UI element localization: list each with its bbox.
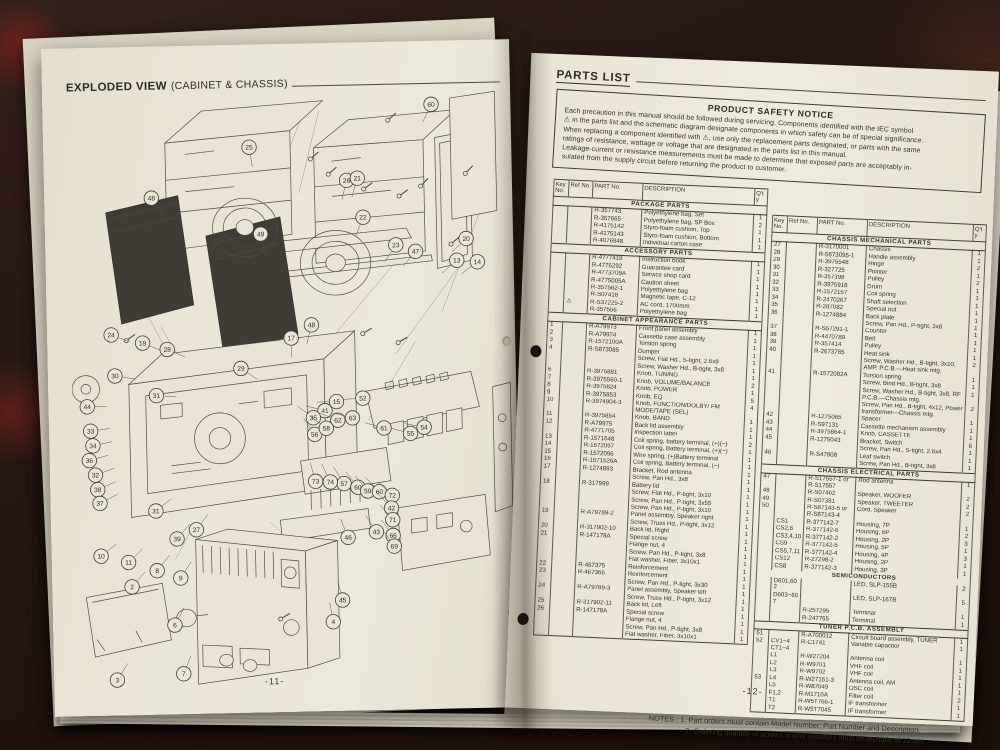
qty: 1	[740, 501, 753, 509]
qty: 1	[966, 376, 979, 384]
qty: 1	[955, 621, 968, 630]
qty: 1	[958, 563, 971, 571]
key-no	[762, 441, 777, 449]
part-no: R-3974904-3	[583, 397, 634, 414]
key-no: 14	[542, 440, 557, 448]
key-no: 15	[542, 447, 557, 455]
qty: 2	[961, 504, 974, 512]
key-no	[540, 492, 555, 500]
qty: 1	[739, 524, 752, 532]
qty: 1	[752, 237, 765, 245]
callout-number: 4	[331, 619, 335, 626]
qty: 1	[968, 340, 981, 348]
qty: 1	[953, 660, 966, 668]
callout-number: 49	[257, 231, 265, 238]
qty: 1	[736, 606, 749, 614]
qty: 1	[734, 636, 747, 645]
key-no: 18	[540, 477, 555, 485]
ref-no: T2	[765, 704, 795, 713]
qty: 1	[748, 330, 761, 339]
callout-number: 31	[152, 508, 160, 515]
key-no: 17	[541, 462, 556, 470]
key-no	[758, 524, 773, 532]
qty: 1	[964, 420, 977, 428]
qty: 2	[959, 533, 972, 541]
key-no: 38	[767, 331, 782, 339]
key-no	[758, 531, 773, 539]
key-no: 21	[538, 529, 553, 537]
key-no	[538, 537, 553, 545]
part-no	[811, 355, 862, 372]
qty: 1	[952, 682, 965, 690]
callout-number: 20	[462, 236, 470, 243]
ref-no	[548, 627, 572, 636]
key-no: 28	[771, 249, 786, 257]
qty: 1	[742, 464, 755, 472]
callout-number: 6	[173, 622, 177, 629]
part-no	[572, 628, 622, 638]
key-no	[534, 611, 549, 619]
key-no: 25	[535, 597, 550, 605]
qty: 1	[961, 481, 975, 496]
key-no: 48	[760, 487, 775, 495]
qty: 1	[972, 258, 985, 266]
qty: 1	[735, 621, 748, 629]
callout-number: 52	[359, 395, 367, 402]
key-no	[552, 228, 567, 236]
part-no	[800, 592, 851, 609]
ref-no: D603~607	[770, 591, 801, 607]
qty: 2	[960, 511, 974, 526]
key-no: 1	[547, 321, 562, 330]
callout-number: 17	[287, 335, 295, 342]
key-no	[752, 666, 767, 674]
key-no: 33	[769, 286, 784, 294]
key-no: 3	[547, 336, 562, 344]
callout-number: 15	[333, 399, 341, 406]
left-page: EXPLODED VIEW (CABINET & CHASSIS)	[41, 39, 523, 717]
qty: 2	[965, 406, 979, 421]
qty: 1	[969, 310, 982, 318]
qty: 1	[967, 355, 980, 363]
qty: 1	[741, 479, 754, 487]
callout-number: 62	[334, 417, 342, 424]
key-no: 23	[536, 567, 551, 575]
callout-number: 26	[343, 178, 351, 185]
key-no: 53	[752, 673, 767, 681]
key-no: 8	[545, 381, 560, 389]
qty: 1	[739, 531, 752, 539]
key-no	[537, 552, 552, 560]
qty: 1	[969, 325, 982, 333]
product-safety-notice: PRODUCT SAFETY NOTICE Each precaution in…	[552, 89, 986, 193]
qty: 1	[753, 214, 766, 223]
qty: 1	[746, 367, 759, 375]
callout-number: 23	[392, 242, 400, 249]
col-qty: Q'ty	[754, 188, 768, 206]
qty: 5	[745, 397, 758, 405]
key-no	[550, 267, 565, 275]
key-no: 20	[538, 522, 553, 530]
callout-number: 13	[453, 258, 461, 265]
callout-number: 27	[193, 527, 201, 534]
callout-number: 10	[97, 553, 105, 560]
callout-number: 54	[420, 424, 428, 431]
qty: 1	[971, 273, 984, 281]
qty: 6	[963, 442, 976, 450]
key-no: 36	[768, 308, 783, 316]
exploded-diagram: 6025482621224923472013144824192817293031…	[66, 89, 518, 696]
callout-number: 29	[237, 366, 245, 373]
qty: 1	[954, 646, 968, 661]
qty: 1	[966, 384, 979, 392]
qty: 1	[741, 486, 754, 494]
key-no: 51	[754, 629, 769, 638]
key-no: 40	[766, 346, 781, 354]
key-no	[549, 289, 564, 297]
key-no	[757, 561, 772, 569]
qty: 1	[736, 591, 749, 599]
key-no	[534, 619, 549, 627]
qty: 1	[749, 313, 762, 322]
qty: 1	[969, 317, 982, 325]
right-page-number: -12-	[742, 686, 762, 697]
callout-number: 46	[344, 535, 352, 542]
qty: 1	[744, 427, 757, 435]
qty: 2	[971, 265, 984, 273]
qty: 3	[958, 555, 971, 563]
key-no: 49	[760, 494, 775, 502]
key-no	[765, 375, 780, 383]
callout-number: 32	[92, 472, 100, 479]
qty: 1	[968, 347, 981, 355]
qty: 1	[970, 288, 983, 296]
right-page: PARTS LIST PRODUCT SAFETY NOTICE Each pr…	[505, 53, 999, 726]
key-no: 24	[536, 582, 551, 590]
qty: 1	[747, 345, 760, 353]
key-no	[549, 274, 564, 282]
key-no: 32	[770, 278, 785, 286]
key-no	[551, 235, 566, 244]
qty: 1	[952, 690, 965, 698]
callout-number: 42	[388, 505, 396, 512]
key-no: 11	[543, 410, 558, 418]
callout-number: 25	[245, 145, 253, 152]
key-no	[541, 470, 556, 478]
qty: 1	[751, 276, 764, 284]
key-no	[546, 358, 561, 366]
ref-no: CV1~4 CT1~4	[768, 637, 799, 653]
qty: 4	[744, 405, 758, 420]
qty: 1	[738, 561, 751, 569]
key-no: 42	[764, 411, 779, 419]
callout-number: 71	[389, 517, 397, 524]
key-no	[757, 554, 772, 562]
qty: 1	[748, 338, 761, 346]
qty: 1	[956, 614, 969, 622]
callout-number: 7	[182, 671, 186, 678]
qty: 5	[956, 599, 970, 614]
qty: 2	[746, 382, 759, 390]
parts-tables: Key No. Ref No. PART No. DESCRIPTION Q't…	[530, 178, 983, 721]
qty: 1	[740, 516, 753, 524]
callout-number: 21	[354, 175, 362, 182]
qty: 1	[735, 628, 748, 636]
key-no	[536, 574, 551, 582]
callout-number: 60	[427, 102, 435, 109]
qty: 1	[964, 435, 977, 443]
qty: 1	[746, 375, 759, 383]
key-no	[761, 456, 776, 465]
qty: 1	[750, 291, 763, 299]
qty: 1	[752, 244, 765, 253]
key-no	[758, 539, 773, 547]
ref-no: CS8	[772, 562, 802, 571]
key-no: 10	[544, 396, 560, 411]
key-no	[757, 546, 772, 554]
key-no	[548, 297, 563, 305]
key-no	[553, 205, 568, 214]
qty: 2	[967, 362, 981, 377]
key-no	[543, 425, 558, 433]
callout-number: 39	[173, 536, 181, 543]
ref-no	[779, 397, 810, 413]
key-no: 52	[753, 636, 769, 651]
callout-number: 45	[339, 597, 347, 604]
qty: 1	[960, 525, 973, 533]
key-no: 39	[767, 338, 782, 346]
qty: 1	[957, 570, 970, 578]
callout-number: 31	[153, 393, 161, 400]
callout-number: 59	[364, 488, 372, 495]
ref-no: D601,602	[771, 577, 802, 593]
qty: 1	[963, 450, 976, 458]
ref-no	[559, 396, 584, 411]
qty: 1	[963, 457, 976, 465]
key-no	[535, 589, 550, 597]
callout-number: 44	[83, 404, 91, 411]
qty: 1	[749, 306, 762, 314]
callout-number: 8	[155, 568, 159, 575]
key-no: 46	[762, 448, 777, 456]
part-no: R-W5T7045	[795, 705, 845, 715]
col-qty: Q'ty	[973, 224, 987, 242]
callout-number: 30	[111, 373, 119, 380]
part-no	[809, 384, 860, 401]
ref-no	[774, 503, 805, 519]
col-part: PART No.	[592, 181, 643, 201]
title-rule	[292, 74, 500, 86]
qty: 1	[744, 419, 757, 427]
key-no	[552, 213, 567, 221]
callout-number: 2	[130, 584, 134, 591]
key-no	[539, 500, 554, 508]
qty: 3	[959, 540, 972, 548]
qty: 1	[747, 360, 760, 368]
qty: 1	[747, 353, 760, 361]
callout-number: 69	[391, 543, 399, 550]
key-no: 7	[545, 373, 560, 381]
col-ref: Ref No.	[568, 179, 593, 198]
callout-number: 14	[474, 259, 482, 266]
key-no	[551, 251, 566, 260]
key-no	[754, 612, 769, 621]
key-no	[533, 626, 548, 635]
qty: 1	[739, 539, 752, 547]
key-no	[548, 304, 563, 313]
key-no	[765, 382, 781, 397]
key-no: 43	[763, 418, 778, 426]
callout-number: 11	[125, 560, 132, 567]
key-no	[759, 516, 774, 524]
qty: 1	[742, 471, 755, 479]
key-no: 16	[541, 455, 556, 463]
qty: 1	[745, 390, 758, 398]
key-no: 41	[765, 367, 780, 375]
ref-no: ⚠	[563, 297, 587, 306]
callout-number: 57	[340, 481, 348, 488]
callout-number: 43	[373, 529, 381, 536]
col-key: Key No.	[553, 179, 569, 197]
qty: 2	[952, 697, 965, 705]
qty: 1	[753, 229, 766, 237]
title-rest: (CABINET & CHASSIS)	[171, 78, 288, 92]
qty: 2	[971, 280, 984, 288]
qty: 2	[743, 442, 756, 450]
qty: 2	[753, 222, 766, 230]
parts-list-heading: PARTS LIST	[556, 69, 631, 87]
callout-number: 34	[89, 443, 97, 450]
key-no	[768, 316, 783, 324]
key-no	[756, 576, 772, 591]
key-no	[753, 651, 768, 659]
qty: 1	[962, 465, 975, 474]
key-no: 45	[762, 433, 777, 441]
key-no	[540, 485, 555, 493]
qty: 1	[736, 598, 749, 606]
callout-number: 3	[116, 677, 120, 684]
callout-number: 47	[412, 249, 420, 256]
part-no: R-S87143-5 or R-S87143-4	[804, 504, 855, 521]
punch-hole-bottom	[517, 613, 528, 625]
qty: 1	[953, 667, 966, 675]
key-no: 19	[539, 507, 554, 515]
qty: 1	[750, 298, 763, 306]
callout-number: 22	[359, 214, 367, 221]
qty: 1	[751, 261, 764, 270]
key-no	[549, 282, 564, 290]
qty: 1	[968, 332, 981, 340]
key-no	[750, 703, 765, 712]
key-no	[539, 514, 554, 522]
ref-no	[779, 383, 810, 399]
callout-number: 63	[349, 415, 357, 422]
key-no: 44	[763, 426, 778, 434]
qty: 1	[751, 268, 764, 276]
callout-number: 58	[323, 426, 331, 433]
punch-hole-top	[530, 345, 541, 357]
callout-number: 61	[380, 425, 388, 432]
callout-number: 38	[94, 487, 102, 494]
callout-number: 73	[312, 479, 320, 486]
parts-table-right: Key No. Ref No. PART No. DESCRIPTION Q't…	[750, 214, 987, 721]
qty: 1	[735, 613, 748, 621]
callout-number: 72	[389, 493, 397, 500]
key-no: 13	[542, 432, 557, 440]
qty: 1	[737, 583, 750, 591]
key-no: 30	[770, 263, 785, 271]
ref-no	[775, 473, 806, 489]
qty: 2	[957, 585, 971, 600]
key-no: 27	[771, 241, 786, 250]
part-no	[801, 578, 852, 595]
key-no: 12	[543, 417, 558, 425]
callout-number: 19	[139, 340, 147, 347]
key-no	[751, 696, 766, 704]
callout-number: 9	[179, 575, 183, 582]
col-key: Key No.	[772, 215, 788, 233]
qty: 1	[953, 675, 966, 683]
qty: 1	[737, 576, 750, 584]
qty: 1	[743, 434, 756, 442]
key-no	[537, 544, 552, 552]
qty: 1	[737, 568, 750, 576]
qty: 1	[740, 509, 753, 517]
qty: 1	[741, 494, 754, 502]
key-no: 4	[546, 343, 561, 351]
qty: 1	[964, 428, 977, 436]
part-no: R-C1741	[798, 639, 849, 656]
qty: 1	[951, 712, 964, 721]
callout-number: 56	[311, 432, 319, 439]
callout-number: 24	[107, 332, 115, 339]
key-no	[764, 397, 780, 412]
qty: 1	[965, 391, 979, 406]
callout-number: 33	[87, 429, 95, 436]
key-no	[766, 353, 782, 368]
left-page-number: -11-	[265, 676, 285, 686]
key-no	[550, 259, 565, 267]
ref-no	[781, 354, 812, 370]
callout-number: 37	[96, 501, 104, 508]
key-no	[755, 590, 771, 605]
key-no: 2	[547, 329, 562, 337]
key-no: 50	[759, 502, 775, 517]
col-part: PART No.	[817, 217, 868, 237]
key-no: 6	[545, 366, 560, 374]
qty: 1	[951, 705, 964, 713]
title-bold: EXPLODED VIEW	[66, 80, 167, 94]
qty: 1	[738, 546, 751, 554]
key-no: 47	[760, 472, 776, 488]
qty: 1	[750, 283, 763, 291]
callout-number: 36	[86, 458, 94, 465]
callout-number: 48	[308, 322, 316, 329]
key-no: 26	[535, 604, 550, 612]
qty: 2	[961, 496, 974, 504]
qty: 1	[970, 295, 983, 303]
key-no: 31	[770, 271, 785, 279]
qty: 1	[972, 250, 985, 259]
qty: 1	[743, 449, 756, 457]
key-no: 37	[767, 323, 782, 331]
key-no	[752, 658, 767, 666]
callout-number: 74	[327, 479, 335, 486]
qty: 1	[954, 638, 967, 647]
qty: 1	[742, 456, 755, 464]
callout-number: 48	[148, 195, 156, 202]
callout-number: 55	[407, 431, 415, 438]
